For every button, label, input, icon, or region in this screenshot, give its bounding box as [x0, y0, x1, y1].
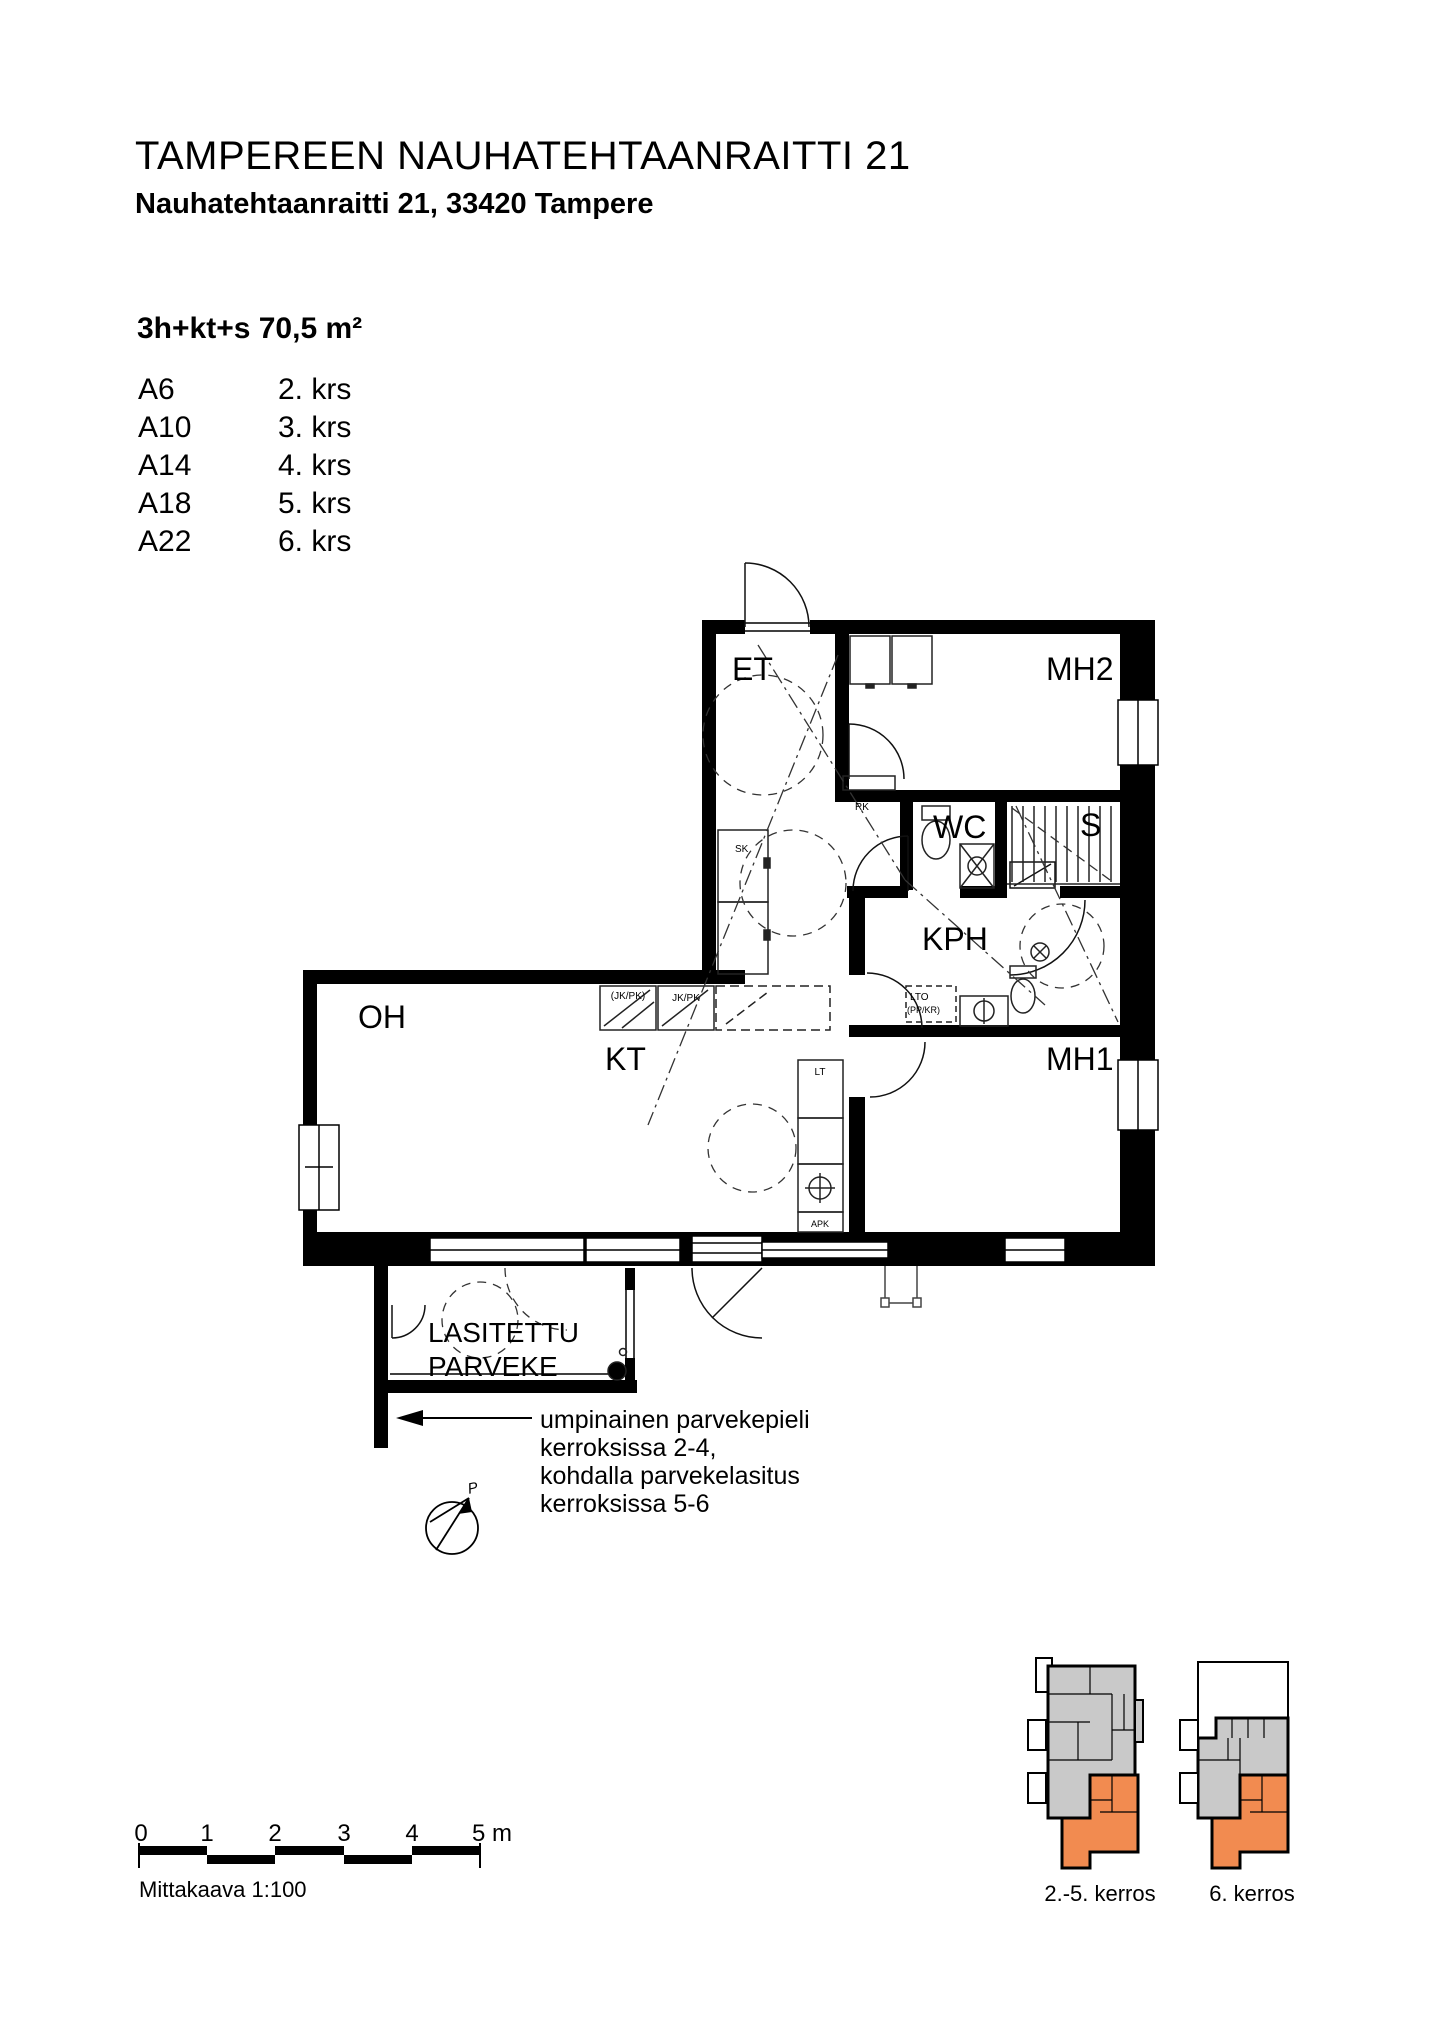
scale-tick-2: 2	[268, 1820, 281, 1847]
closet-mh2	[850, 636, 890, 684]
wc-door	[853, 836, 908, 891]
scale-tick-4: 4	[405, 1820, 418, 1847]
label-jkpk-opt: (JK/PK)	[611, 991, 645, 1002]
balcony-label-line2: PARVEKE	[428, 1351, 558, 1382]
balcony-glazing	[762, 1242, 888, 1258]
key-plan-left-label: 2.-5. kerros	[1044, 1881, 1155, 1906]
room-label-kt: KT	[605, 1041, 646, 1077]
balcony-side-hatch	[392, 1305, 425, 1338]
balcony-drain	[608, 1362, 626, 1380]
scale-bar-segments	[138, 1843, 481, 1868]
north-label: P	[466, 1479, 479, 1498]
kitchen-worktop	[798, 1060, 843, 1232]
room-label-kph: KPH	[922, 921, 988, 957]
kph-floor-drain	[1031, 943, 1049, 961]
window-bottom-2	[586, 1238, 680, 1262]
closet-sk	[718, 902, 768, 974]
scale-caption: Mittakaava 1:100	[139, 1877, 307, 1902]
key-plan-right-label: 6. kerros	[1209, 1881, 1295, 1906]
balcony-door	[692, 1268, 762, 1338]
key-plan-left: 2.-5. kerros	[1028, 1658, 1156, 1906]
room-label-wc: WC	[933, 809, 986, 845]
label-apk: APK	[811, 1219, 829, 1229]
annotation-line2: kerroksissa 2-4,	[540, 1434, 716, 1462]
label-lto: LTO	[910, 992, 929, 1003]
label-sk: SK	[735, 844, 749, 855]
kph-toilet	[1010, 966, 1036, 1013]
label-jkpk: JK/PK	[672, 993, 700, 1004]
annotation-line1: umpinainen parvekepieli	[540, 1406, 810, 1434]
window-mh2-right	[1118, 700, 1158, 765]
label-lt: LT	[815, 1067, 826, 1078]
scale-tick-0: 0	[134, 1820, 147, 1847]
mh1-door	[870, 1042, 925, 1097]
fixture-labels: RK SK (JK/PK) JK/PK LT APK LTO (PP/KR)	[611, 802, 940, 1229]
window-bottom-3	[1005, 1238, 1065, 1262]
annotation-line4: kerroksissa 5-6	[540, 1490, 710, 1518]
room-label-oh: OH	[358, 999, 406, 1035]
french-railing	[881, 1266, 921, 1307]
room-label-et: ET	[732, 651, 773, 687]
balcony-door-threshold	[692, 1236, 762, 1262]
rk-panel	[843, 776, 895, 790]
window-living-left	[299, 1125, 339, 1210]
window-mh1-right	[1118, 1060, 1158, 1130]
annotation-line3: kohdalla parvekelasitus	[540, 1462, 800, 1490]
scale-tick-3: 3	[337, 1820, 350, 1847]
wc-sink	[960, 844, 994, 888]
floor-plan-sheet: TAMPEREEN NAUHATEHTAANRAITTI 21 Nauhateh…	[0, 0, 1440, 2036]
sauna-benches	[1007, 806, 1120, 884]
label-rk: RK	[855, 802, 869, 813]
annotation-arrowhead	[396, 1410, 423, 1426]
scale-bar: 0 1 2 3 4 5 m Mittakaava 1:100	[134, 1820, 512, 1902]
balcony-label-line1: LASITETTU	[428, 1317, 579, 1348]
room-label-mh1: MH1	[1046, 1041, 1114, 1077]
key-plan-right: 6. kerros	[1180, 1662, 1295, 1906]
room-label-mh2: MH2	[1046, 651, 1114, 687]
balcony-annotation: umpinainen parvekepieli kerroksissa 2-4,…	[396, 1406, 810, 1518]
fixtures	[600, 636, 1120, 1380]
label-lto-sub: (PP/KR)	[907, 1005, 940, 1015]
window-bottom-1	[430, 1238, 584, 1262]
scale-tick-5: 5 m	[472, 1820, 512, 1847]
entry-threshold	[745, 623, 810, 631]
scale-tick-1: 1	[200, 1820, 213, 1847]
closet-mh2	[892, 636, 932, 684]
floor-plan-drawing: ET MH2 WC S KPH OH KT MH1 LASITETTU PARV…	[0, 0, 1440, 2036]
room-label-s: S	[1080, 807, 1101, 843]
kph-sink	[960, 996, 1008, 1026]
mh2-door	[849, 724, 904, 779]
entry-door	[745, 563, 809, 627]
windows	[299, 623, 1158, 1380]
north-arrow: P	[426, 1479, 479, 1554]
